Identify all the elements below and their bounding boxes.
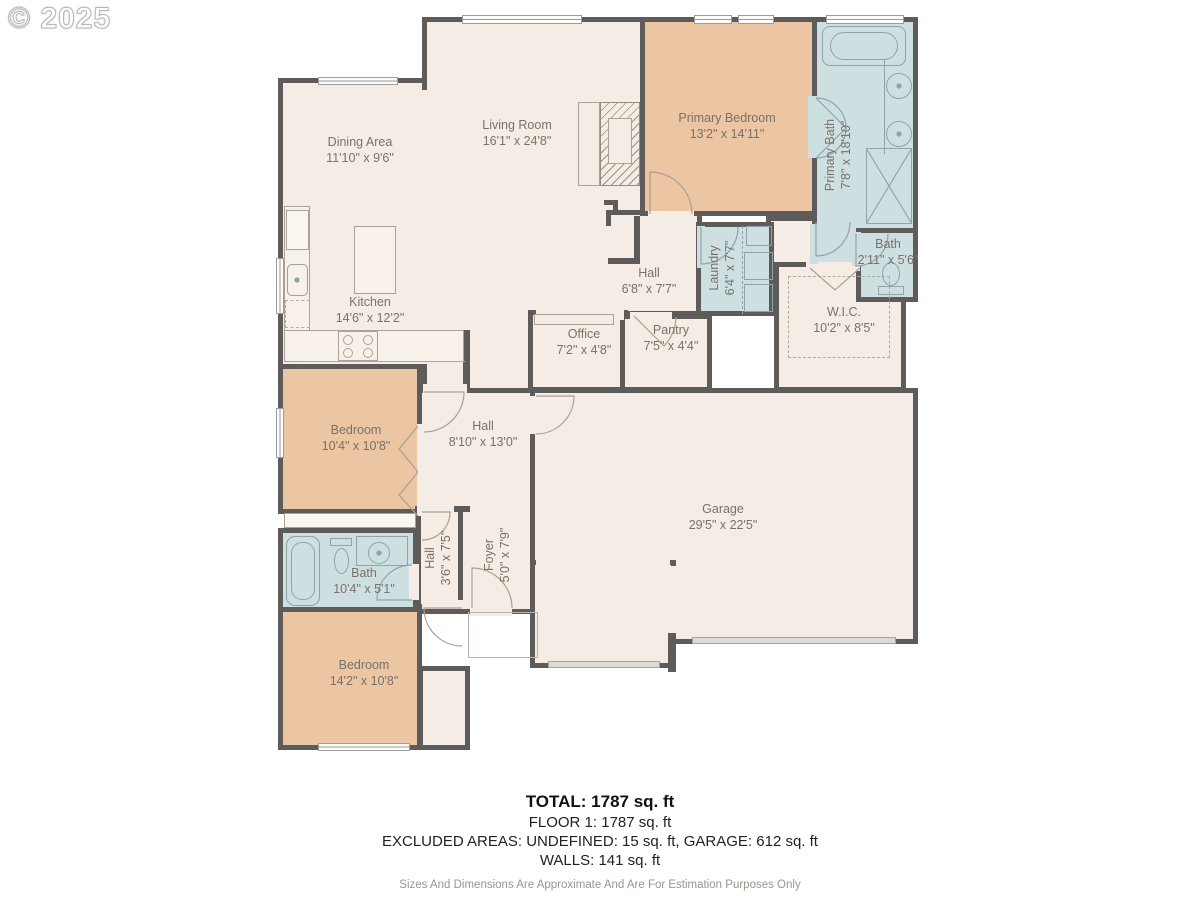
- opening-living-hall: [602, 226, 620, 308]
- room-name: Pantry: [644, 322, 699, 338]
- summary-floor1: FLOOR 1: 1787 sq. ft: [0, 814, 1200, 831]
- wall-hall-foyer-divider: [458, 512, 463, 610]
- toilet-tank-right-icon: [878, 286, 904, 295]
- room-dims: 3'6" x 7'5": [438, 531, 454, 586]
- wall-stub-fireplace: [634, 216, 640, 264]
- bathtub-mid-inner-icon: [291, 542, 315, 600]
- room-dims: 6'4" x 7'7": [722, 241, 738, 296]
- room-label-living: Living Room 16'1" x 24'8": [482, 117, 551, 150]
- room-name: W.I.C.: [813, 304, 875, 320]
- window-kitchen-left: [276, 258, 284, 314]
- bathtub-primary-inner-icon: [830, 32, 898, 60]
- room-label-pantry: Pantry 7'5" x 4'4": [644, 322, 699, 355]
- garage-door-2: [692, 637, 896, 644]
- room-dims: 8'10" x 13'0": [449, 434, 518, 450]
- room-dims: 14'6" x 12'2": [336, 310, 405, 326]
- opening-garage-extension: [536, 554, 670, 572]
- room-dims: 7'2" x 4'8": [557, 342, 612, 358]
- room-label-hall-mid: Hall 8'10" x 13'0": [449, 418, 518, 451]
- door-gap-bedroom-bottom: [424, 600, 464, 609]
- fireplace-firebox-icon: [608, 118, 632, 164]
- room-dims: 13'2" x 14'11": [678, 126, 775, 142]
- room-dims: 7'5" x 4'4": [644, 338, 699, 354]
- room-dims: 14'2" x 10'8": [330, 673, 399, 689]
- room-dims: 2'11" x 5'6": [858, 252, 919, 268]
- vanity-counter-line: [884, 60, 885, 154]
- window-primary-bedroom-2: [738, 15, 774, 24]
- room-name: Hall: [449, 418, 518, 434]
- room-dims: 6'8" x 7'7": [622, 281, 677, 297]
- room-label-office: Office 7'2" x 4'8": [557, 326, 612, 359]
- room-name: Dining Area: [326, 134, 394, 150]
- sink-primary-1-icon: [886, 73, 912, 99]
- door-gap-garage-entry: [529, 396, 538, 434]
- room-dims: 10'4" x 5'1": [333, 581, 395, 597]
- room-dims: 29'5" x 22'5": [689, 517, 758, 533]
- dishwasher-icon: [285, 300, 310, 328]
- opening-garage-bottom: [538, 632, 668, 650]
- summary-excluded: EXCLUDED AREAS: UNDEFINED: 15 sq. ft, GA…: [0, 833, 1200, 850]
- summary-walls: WALLS: 141 sq. ft: [0, 852, 1200, 869]
- stove-icon: [338, 331, 378, 361]
- room-label-bath-mid: Bath 10'4" x 5'1": [333, 565, 395, 598]
- room-name: Garage: [689, 501, 758, 517]
- room-label-laundry: Laundry 6'4" x 7'7": [706, 241, 739, 296]
- room-label-dining: Dining Area 11'10" x 9'6": [326, 134, 394, 167]
- room-dims: 5'0" x 7'9": [497, 528, 513, 583]
- room-label-hall-upper: Hall 6'8" x 7'7": [622, 265, 677, 298]
- window-living-top: [462, 15, 582, 24]
- room-label-foyer: Foyer 5'0" x 7'9": [481, 528, 514, 583]
- room-name: Kitchen: [336, 294, 405, 310]
- room-label-bedroom-bottom: Bedroom 14'2" x 10'8": [330, 657, 399, 690]
- opening-dining-living: [420, 90, 436, 364]
- summary-total: TOTAL: 1787 sq. ft: [0, 792, 1200, 812]
- refrigerator-icon: [286, 210, 309, 250]
- window-primary-bedroom-1: [694, 15, 732, 24]
- room-dims: 11'10" x 9'6": [326, 150, 394, 166]
- room-dims: 10'2" x 8'5": [813, 320, 875, 336]
- washer-icon: [744, 252, 773, 280]
- door-gap-pantry: [630, 312, 672, 320]
- laundry-dashed-line: [742, 226, 743, 314]
- door-gap-hall-mid: [423, 384, 467, 396]
- room-name: Office: [557, 326, 612, 342]
- window-bedroom-mid-left: [276, 408, 284, 458]
- room-name: Bath: [333, 565, 395, 581]
- copyright-watermark: © 2025: [8, 2, 111, 36]
- room-label-bedroom-mid: Bedroom 10'4" x 10'8": [322, 422, 391, 455]
- summary-block: TOTAL: 1787 sq. ft FLOOR 1: 1787 sq. ft …: [0, 792, 1200, 891]
- counter-overhang-dashed: [300, 361, 465, 362]
- room-name: Laundry: [706, 241, 722, 296]
- porch-outline: [468, 612, 538, 658]
- room-label-primary-bedroom: Primary Bedroom 13'2" x 14'11": [678, 110, 775, 143]
- room-name: Hall: [422, 531, 438, 586]
- door-gap-primary-bath: [808, 96, 817, 158]
- room-name: Primary Bedroom: [678, 110, 775, 126]
- room-name: Hall: [622, 265, 677, 281]
- window-dining-top: [318, 77, 398, 85]
- door-gap-bedroom-mid-closet: [417, 424, 425, 516]
- door-gap-laundry: [697, 226, 705, 268]
- closet-sliding-doors-icon: [284, 513, 416, 528]
- laundry-sink-icon: [746, 226, 772, 246]
- room-dims: 10'4" x 10'8": [322, 438, 391, 454]
- room-label-hall-lower: Hall 3'6" x 7'5": [422, 531, 455, 586]
- room-name: Bath: [858, 236, 919, 252]
- room-label-kitchen: Kitchen 14'6" x 12'2": [336, 294, 405, 327]
- room-name: Bedroom: [330, 657, 399, 673]
- sink-primary-2-icon: [886, 121, 912, 147]
- room-label-garage: Garage 29'5" x 22'5": [689, 501, 758, 534]
- window-primary-bath: [826, 15, 904, 24]
- room-dims: 7'8" x 18'10": [838, 119, 854, 191]
- door-gap-primary-bedroom: [648, 211, 694, 221]
- window-bedroom-bottom: [318, 743, 410, 751]
- room-closet-bottom: [418, 666, 470, 750]
- fireplace-hearth-icon: [578, 102, 600, 186]
- toilet-tank-mid-icon: [330, 538, 352, 546]
- sink-mid-icon: [368, 542, 390, 564]
- office-desk-icon: [534, 314, 614, 325]
- wall-stub-hall: [608, 258, 640, 264]
- room-name: Bedroom: [322, 422, 391, 438]
- kitchen-sink-icon: [287, 264, 308, 296]
- shower-icon: [866, 148, 912, 224]
- door-gap-hall-lower: [422, 504, 454, 513]
- room-name: Foyer: [481, 528, 497, 583]
- door-gap-bath-lower: [810, 224, 818, 264]
- opening-living: [428, 198, 604, 226]
- room-label-bath-right: Bath 2'11" x 5'6": [858, 236, 919, 269]
- summary-disclaimer: Sizes And Dimensions Are Approximate And…: [0, 879, 1200, 891]
- room-name: Primary Bath: [822, 119, 838, 191]
- kitchen-island-icon: [354, 226, 396, 294]
- room-garage-extension: [530, 560, 676, 668]
- room-dims: 16'1" x 24'8": [482, 133, 551, 149]
- floorplan-page: { "watermark": "© 2025", "palette": { "w…: [0, 0, 1200, 900]
- room-name: Living Room: [482, 117, 551, 133]
- door-gap-bath-mid: [409, 564, 419, 600]
- opening-garage-step: [664, 566, 682, 634]
- garage-door-1: [548, 661, 660, 668]
- room-label-primary-bath: Primary Bath 7'8" x 18'10": [822, 119, 855, 191]
- wall-garage-step: [668, 633, 676, 672]
- dryer-icon: [744, 284, 773, 312]
- room-label-wic: W.I.C. 10'2" x 8'5": [813, 304, 875, 337]
